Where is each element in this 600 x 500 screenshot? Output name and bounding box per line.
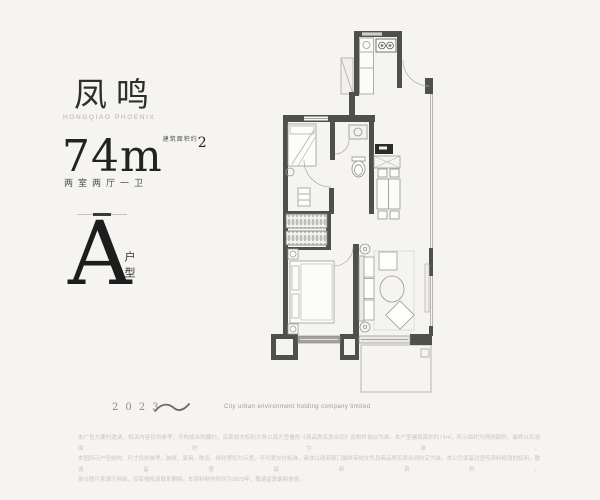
plan-living xyxy=(359,244,429,332)
plan-dining xyxy=(377,169,400,219)
disclaimer-line-2: 本图所示户型结构、尺寸仅供参考，装修、家具、陈设、绿化等仅为示意，不代表交付标准… xyxy=(78,454,540,475)
plan-bedroom1 xyxy=(288,249,334,334)
project-subtitle: HONGQIAO PHOENIX xyxy=(63,114,155,121)
plan-utility xyxy=(374,144,400,168)
company-name: City urban environment holding company l… xyxy=(224,404,370,410)
area-figure: 74m建筑面积约2 xyxy=(62,134,207,179)
disclaimer-text: 本广告为要约邀请，相关内容仅供参考，不构成合同要约，买卖双方权利义务以双方签署的… xyxy=(78,433,540,486)
unit-type-label: 户型 xyxy=(121,251,137,283)
plan-bathroom xyxy=(349,125,367,177)
area-note: 建筑面积约 xyxy=(163,137,198,143)
plan-wardrobe xyxy=(286,214,327,245)
plan-kitchen xyxy=(360,38,397,94)
room-configuration: 两室两厅一卫 xyxy=(64,176,148,189)
plan-bedroom2 xyxy=(286,124,316,206)
disclaimer-line-1: 本广告为要约邀请，相关内容仅供参考，不构成合同要约，买卖双方权利义务以双方签署的… xyxy=(78,433,540,454)
area-superscript: 2 xyxy=(198,135,207,151)
disclaimer-line-3: 部分图片来源于网络，如有侵权请联系删除，本资料制作时间为2023年，敬请留意最新… xyxy=(78,475,540,486)
area-unit: m xyxy=(120,131,163,182)
project-title: 凤鸣 xyxy=(74,68,158,116)
floor-plan xyxy=(228,18,438,398)
area-value: 74 xyxy=(62,131,120,182)
wave-swoosh-icon xyxy=(153,400,191,415)
